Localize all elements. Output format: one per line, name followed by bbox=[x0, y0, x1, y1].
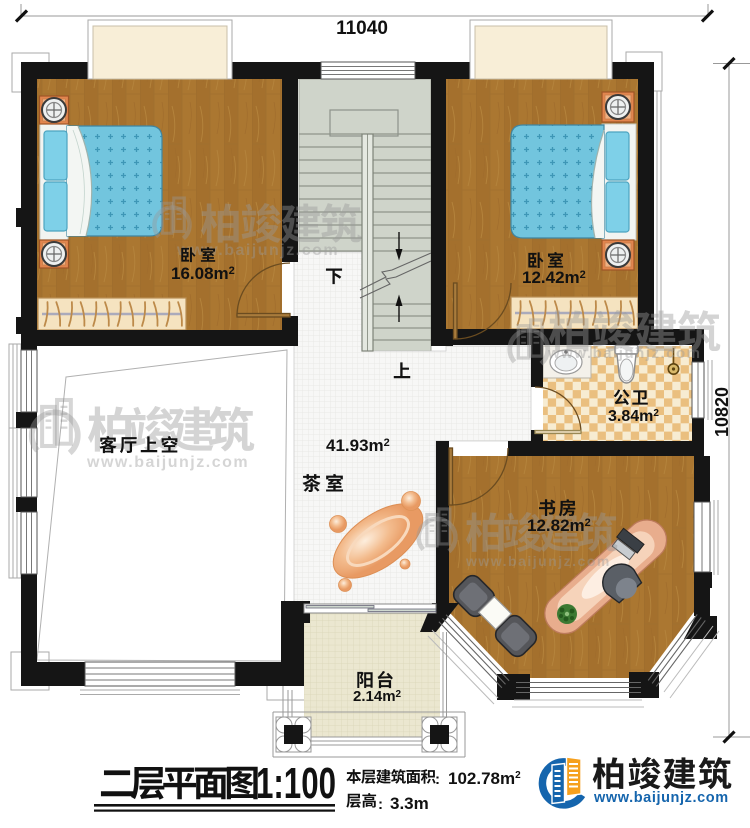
svg-text:11040: 11040 bbox=[336, 18, 388, 39]
svg-text:16.08m2: 16.08m2 bbox=[171, 264, 235, 283]
svg-text:2.14m2: 2.14m2 bbox=[353, 688, 402, 705]
svg-text:www.baijunjz.com: www.baijunjz.com bbox=[593, 790, 729, 806]
svg-text:www.baijunjz.com: www.baijunjz.com bbox=[547, 345, 701, 362]
svg-text:12.42m2: 12.42m2 bbox=[522, 268, 586, 287]
svg-text:1:100: 1:100 bbox=[256, 759, 336, 808]
svg-text:102.78m2: 102.78m2 bbox=[448, 769, 521, 788]
svg-text:3.3m: 3.3m bbox=[390, 794, 429, 813]
svg-text:12.82m2: 12.82m2 bbox=[527, 516, 591, 535]
svg-text:10820: 10820 bbox=[712, 387, 732, 437]
svg-text:www.baijunjz.com: www.baijunjz.com bbox=[86, 454, 249, 471]
svg-text:3.84m2: 3.84m2 bbox=[608, 408, 659, 425]
svg-text:www.baijunjz.com: www.baijunjz.com bbox=[465, 553, 611, 569]
svg-text::: : bbox=[435, 771, 440, 788]
svg-text:41.93m2: 41.93m2 bbox=[326, 436, 390, 455]
svg-text::: : bbox=[378, 796, 383, 813]
svg-text:www.baijunjz.com: www.baijunjz.com bbox=[176, 242, 339, 259]
